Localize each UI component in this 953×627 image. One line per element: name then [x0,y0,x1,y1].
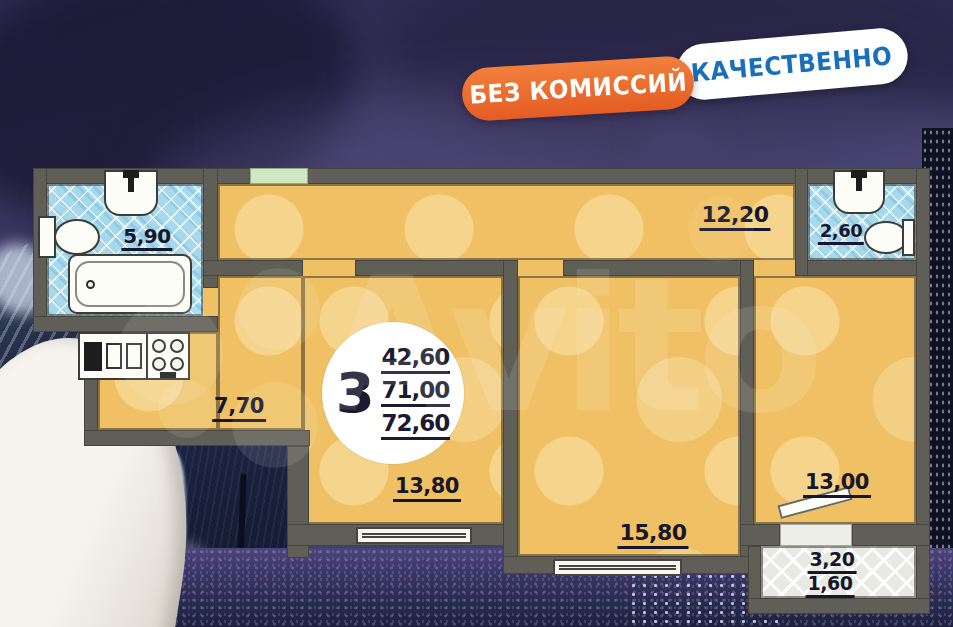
wall [355,260,518,276]
area-label-bathroom: 5,90 [121,226,172,251]
wall [852,524,930,546]
wall [916,168,930,614]
wall [795,260,930,276]
area-label-bedroom: 15,80 [617,522,688,549]
door-opening [518,260,563,276]
rooms-count: 3 [336,365,375,421]
wall [795,168,808,276]
door-opening [203,288,218,316]
window-glass [362,533,466,538]
area-label-living: 13,80 [393,476,461,502]
balcony-door-opening [780,524,852,546]
toilet-tank-icon [902,219,915,256]
wall [563,260,754,276]
quality-badge-label: КАЧЕСТВЕННО [690,41,894,87]
total-area-value: 71,00 [381,379,451,407]
window [553,559,682,576]
apartment-summary-circle: 3 42,60 71,00 72,60 [322,322,464,464]
watermark-dot [232,382,318,468]
wall [740,524,780,546]
tap-icon [128,176,134,192]
full-area-value: 72,60 [381,412,451,440]
entrance-door [250,168,308,184]
room-bedroom [518,276,740,556]
sink-icon [104,170,158,216]
watermark-dot [158,380,216,438]
bathtub-drain-icon [86,280,95,289]
window [356,527,472,544]
door-opening [754,260,795,276]
toilet-icon [54,219,100,255]
tap-icon [856,176,862,191]
area-values: 42,60 71,00 72,60 [381,344,451,443]
no-commission-badge-label: БЕЗ КОМИССИЙ [468,67,688,109]
living-area-value: 42,60 [381,346,451,374]
window-glass [559,565,676,570]
listing-image: 5,90 12,20 2,60 7,70 13,80 15,80 13,00 3… [0,0,953,627]
sink-icon [833,170,885,214]
wall [748,598,930,614]
kitchen-sink-icon [84,342,102,371]
area-label-wc: 2,60 [818,222,864,245]
watermark-dot [238,268,320,350]
wall [503,260,518,574]
door-opening [303,260,355,276]
area-label-balcony: 3,20 [808,550,857,574]
watermark-dot [688,196,754,262]
area-label-balcony-reduced: 1,60 [806,574,855,598]
area-label-bedroom2: 13,00 [803,472,871,498]
